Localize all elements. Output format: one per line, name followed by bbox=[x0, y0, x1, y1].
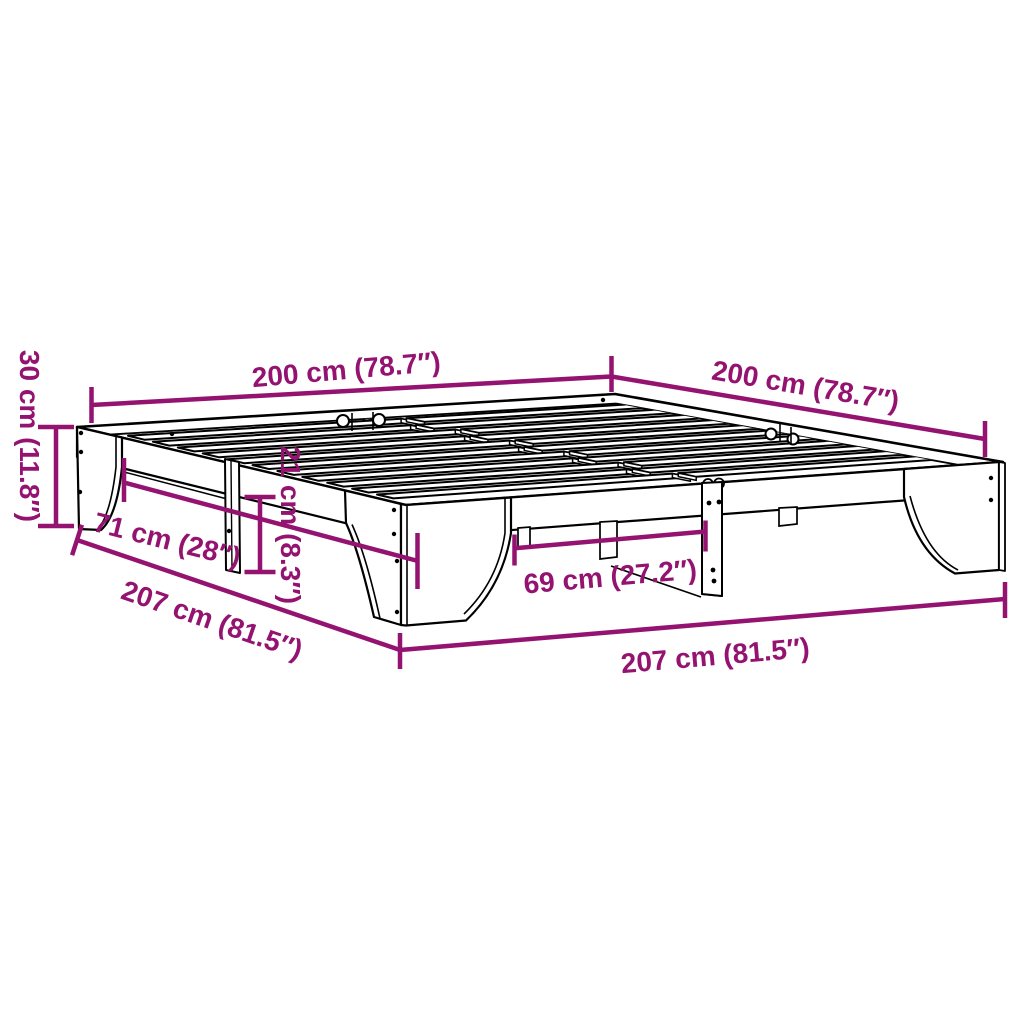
svg-text:30 cm (11.8″): 30 cm (11.8″) bbox=[14, 350, 45, 522]
svg-text:21 cm (8.3″): 21 cm (8.3″) bbox=[275, 446, 306, 604]
